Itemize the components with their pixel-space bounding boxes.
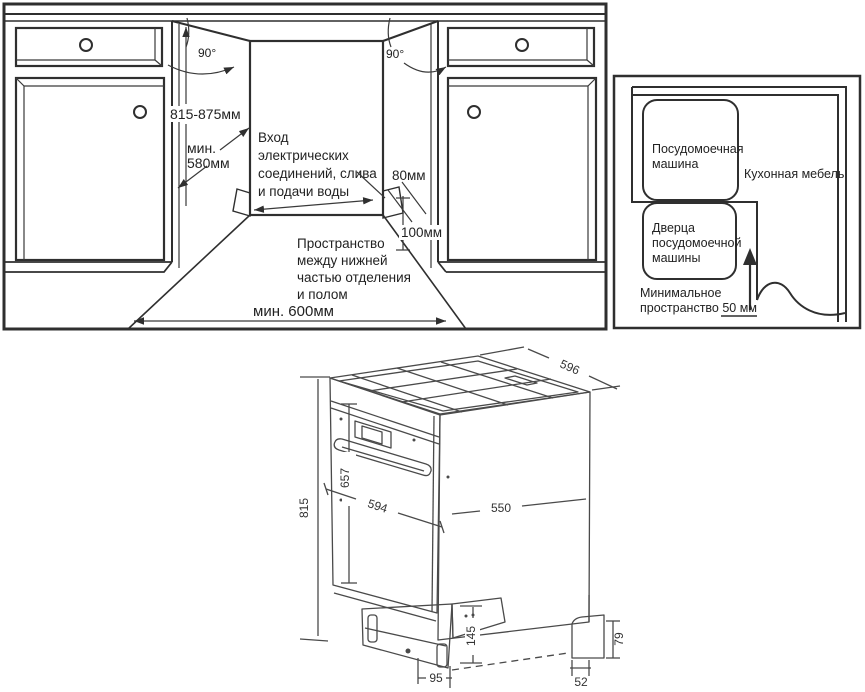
cabinet-right: [438, 28, 606, 272]
dim-596-label: 596: [558, 357, 582, 378]
dim-min-width: мин. 600мм: [134, 303, 446, 321]
top-frame: [330, 356, 590, 415]
dishwasher-isometric: 596 815 657 594 550: [297, 347, 626, 689]
base-bracket: [362, 598, 505, 668]
door-label-3: машины: [652, 251, 700, 265]
dim-side-depth-550: 550: [452, 499, 586, 515]
inlet-label-2: электрических: [258, 148, 349, 163]
dim-height-815: 815: [297, 377, 330, 641]
door-knob-left: [134, 106, 146, 118]
gap-label-3: частью отделения: [297, 270, 411, 285]
min-space-label-1: Минимальное: [640, 286, 721, 300]
dim-inlet-size: 80мм 100мм: [388, 168, 442, 250]
installation-diagram-page: 90° 90° 815-875мм мин. 580мм Вход электр…: [0, 0, 865, 692]
dim-594-label: 594: [366, 496, 390, 516]
angle-right-label: 90°: [386, 47, 404, 61]
dim-foot-height-79: 79: [606, 621, 626, 658]
countertop: [4, 14, 606, 21]
gap-label-1: Пространство: [297, 236, 385, 251]
dim-min-depth: мин. 580мм: [178, 128, 249, 188]
gap-label-2: между нижней: [297, 253, 388, 268]
door-label-1: Дверца: [652, 221, 695, 235]
inlet-height-label: 100мм: [401, 225, 442, 240]
inlet-hatch-left: [233, 189, 250, 216]
dim-foot-width-52: 52: [570, 660, 591, 689]
drawer-knob-left: [80, 39, 92, 51]
door-knob-right: [468, 106, 480, 118]
drawer-knob-right: [516, 39, 528, 51]
inlet-label-4: и подачи воды: [258, 184, 349, 199]
top-view-panel: Посудомоечная машина Дверца посудомоечно…: [614, 76, 860, 328]
furniture-break-squiggle: [757, 283, 845, 315]
cabinet-left: [4, 28, 172, 272]
floor-line: [452, 653, 568, 670]
dim-52-label: 52: [574, 675, 588, 689]
adjustable-foot: [572, 615, 604, 658]
gap-label-4: и полом: [297, 287, 348, 302]
inlet-callout: Вход электрических соединений, слива и п…: [254, 130, 385, 210]
dim-95-label: 95: [429, 671, 443, 685]
niche-front-view: 90° 90° 815-875мм мин. 580мм Вход электр…: [4, 4, 606, 329]
dim-145-label: 145: [464, 626, 478, 646]
furniture-label: Кухонная мебель: [744, 167, 844, 181]
mounting-slot-right: [437, 644, 447, 667]
dishwasher-label-1: Посудомоечная: [652, 142, 744, 156]
dim-base-height-145: 145: [460, 606, 482, 663]
min-width-label: мин. 600мм: [253, 303, 334, 320]
height-range-label: 815-875мм: [170, 106, 241, 122]
min-depth-label-1: мин.: [187, 140, 216, 156]
diagram-canvas: 90° 90° 815-875мм мин. 580мм Вход электр…: [0, 0, 865, 692]
dim-79-label: 79: [612, 632, 626, 646]
min-depth-label-2: 580мм: [187, 155, 230, 171]
floor-gap-callout: Пространство между нижней частью отделен…: [297, 236, 411, 302]
angle-left-label: 90°: [198, 46, 216, 60]
dim-657-label: 657: [338, 468, 352, 488]
inlet-width-label: 80мм: [392, 168, 426, 183]
min-space-label-2: пространство 50 мм: [640, 301, 757, 315]
angle-marks: 90° 90°: [168, 18, 446, 74]
dim-550-label: 550: [491, 501, 511, 515]
door-label-2: посудомоечной: [652, 236, 742, 250]
inlet-hatch-right: [383, 187, 403, 218]
dim-815-label: 815: [297, 498, 311, 518]
dishwasher-label-2: машина: [652, 157, 698, 171]
inlet-label-1: Вход: [258, 130, 289, 145]
arrow-up-icon: [743, 248, 757, 265]
